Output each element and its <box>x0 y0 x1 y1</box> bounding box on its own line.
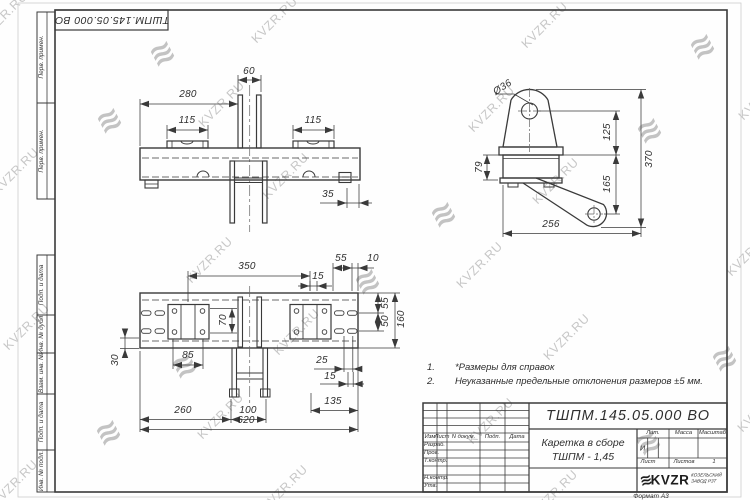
row-label-prov: Пров. <box>424 451 439 457</box>
kvzr-logo-brand: KVZR <box>651 472 690 487</box>
dim-85: 85 <box>182 351 194 361</box>
dim-15-top: 15 <box>312 272 324 282</box>
col-header-data: Дата <box>509 435 524 441</box>
row-label-razrab: Разраб. <box>424 443 445 449</box>
note-2-text: Неуказанные предельные отклонения размер… <box>455 377 703 387</box>
side-column-label-inv-podl: Инв. № подл. <box>39 451 46 491</box>
side-column-label-inv-dubl: Инв. № дубл. <box>39 314 46 354</box>
massa-label: Масса <box>675 431 692 437</box>
dim-55-right: 55 <box>381 297 391 309</box>
row-label-t-kontr: Т.контр. <box>424 459 447 465</box>
format-label: Формат А3 <box>633 493 669 500</box>
row-label-n-kontr: Н.контр. <box>424 476 449 482</box>
kvzr-logo-sub1: КОЗЕЛЬСКИЙ <box>691 474 722 479</box>
dim-135: 135 <box>324 397 342 407</box>
side-column-label-perv-primen-1: Перв. примен. <box>39 35 46 78</box>
listov-value: 1 <box>712 460 715 466</box>
col-header-podp: Подп. <box>485 435 500 441</box>
dim-620: 620 <box>237 416 255 426</box>
dim-256: 256 <box>542 220 560 230</box>
dim-55-top: 55 <box>335 254 347 264</box>
note-2: 2. Неуказанные предельные отклонения раз… <box>427 377 703 387</box>
dim-30: 30 <box>111 354 121 366</box>
title-doc-number: ТШПМ.145.05.000 ВО <box>546 409 710 424</box>
listov-label: Листов <box>673 460 694 466</box>
product-name-line2: ТШПМ - 1,45 <box>552 452 614 463</box>
dim-370: 370 <box>645 150 655 168</box>
dim-115-left: 115 <box>179 116 196 126</box>
dim-115-right: 115 <box>305 116 322 126</box>
col-header-list: Лист <box>435 435 450 441</box>
side-view <box>483 88 646 237</box>
dim-280: 280 <box>179 90 197 100</box>
dim-60: 60 <box>243 67 255 77</box>
side-column-label-podp-data-1: Подп. и дата <box>39 265 46 306</box>
list-label: Лист <box>641 460 656 466</box>
dim-15-right: 15 <box>324 372 336 382</box>
lit-label: Лит. <box>646 431 660 437</box>
plan-view <box>120 263 400 432</box>
dim-25: 25 <box>316 356 328 366</box>
side-column-label-vzam-inv: Взам. инв. № <box>39 353 46 393</box>
note-2-number: 2. <box>427 377 435 387</box>
dim-35: 35 <box>322 190 334 200</box>
linework-svg <box>0 0 750 500</box>
note-1-number: 1. <box>427 363 435 373</box>
dim-10: 10 <box>367 254 379 264</box>
dim-160: 160 <box>397 310 407 328</box>
row-label-utv: Утв. <box>424 484 437 490</box>
lit-value: И <box>640 444 645 452</box>
kvzr-logo-sub2: ЗАВОД РЗТ <box>691 480 717 485</box>
masshtab-label: Масштаб <box>699 431 726 437</box>
dim-50-right: 50 <box>381 315 391 327</box>
side-column-label-perv-primen-2: Перв. примен. <box>39 129 46 172</box>
note-1-text: *Размеры для справок <box>455 363 555 373</box>
dim-165: 165 <box>603 175 613 193</box>
dim-125: 125 <box>603 123 613 141</box>
col-header-n-dokum: N докум. <box>452 435 475 441</box>
drawing-sheet: KVZR.RU≋KVZR.RUKVZR.RU≋≋KVZR.RUKVZR.RU≋K… <box>0 0 750 500</box>
note-1: 1. *Размеры для справок <box>427 363 554 373</box>
product-name-line1: Каретка в сборе <box>541 438 624 449</box>
front-view <box>140 75 372 232</box>
dim-79: 79 <box>475 161 485 173</box>
top-stamp-doc-number: ТШПМ.145.05.000 ВО <box>56 10 168 30</box>
dim-70: 70 <box>219 314 229 326</box>
side-column-label-podp-data-2: Подп. и дата <box>39 402 46 443</box>
dim-350: 350 <box>238 262 256 272</box>
dim-260: 260 <box>174 406 192 416</box>
